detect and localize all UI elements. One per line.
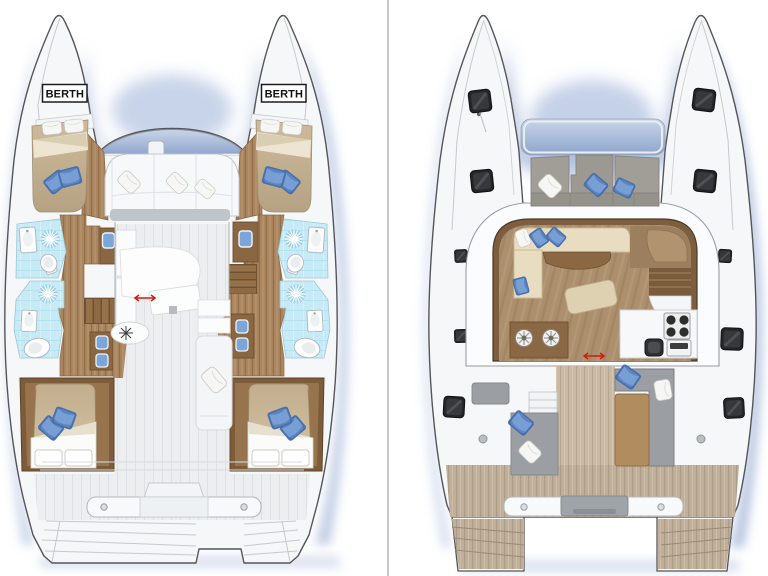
svg-text:BERTH: BERTH: [46, 89, 84, 101]
svg-text:BERTH: BERTH: [265, 89, 303, 101]
